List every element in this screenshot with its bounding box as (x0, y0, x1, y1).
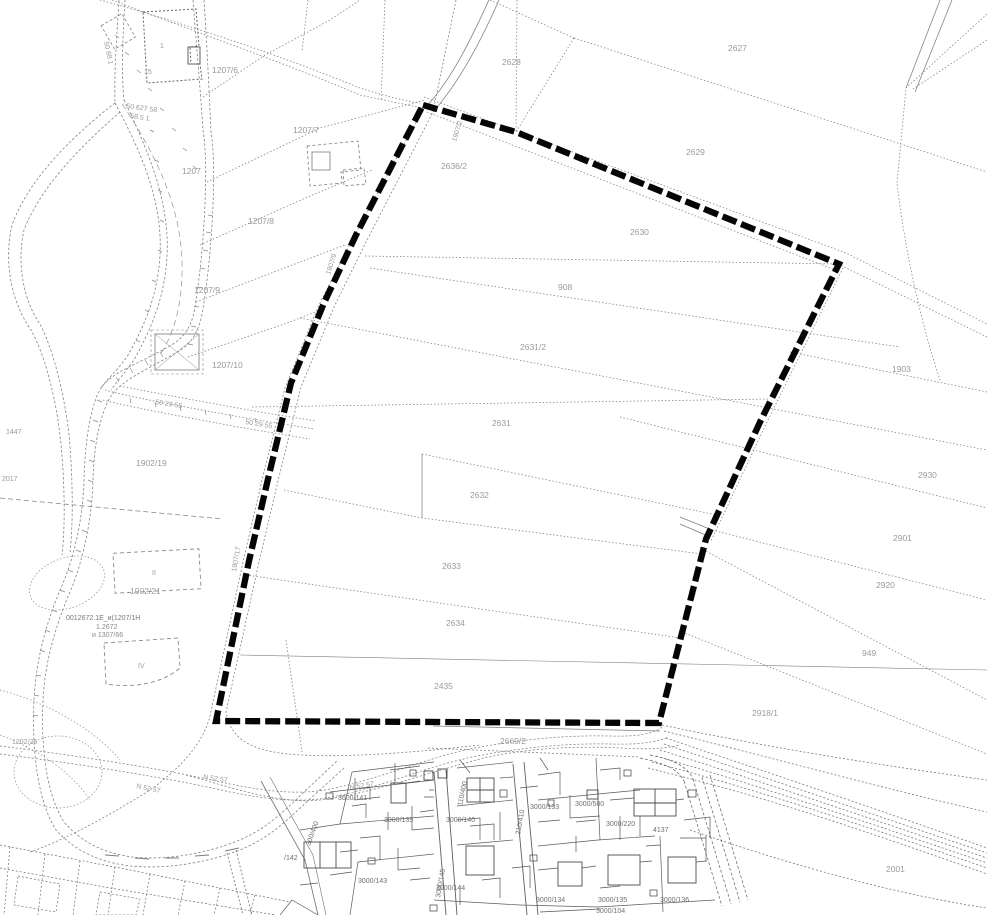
svg-text:1.2672: 1.2672 (96, 624, 118, 631)
svg-text:2435: 2435 (434, 681, 453, 691)
svg-text:IV: IV (138, 663, 145, 670)
svg-text:2930: 2930 (918, 470, 937, 480)
svg-text:/142: /142 (284, 855, 298, 862)
svg-text:и 1307/66: и 1307/66 (92, 632, 123, 639)
svg-text:2669/2: 2669/2 (500, 736, 526, 746)
svg-text:3000/139: 3000/139 (384, 817, 413, 824)
svg-text:1903: 1903 (892, 364, 911, 374)
svg-text:3000/141: 3000/141 (338, 795, 367, 802)
svg-text:1207/6: 1207/6 (212, 65, 238, 75)
svg-text:1902/21: 1902/21 (130, 586, 161, 596)
svg-text:II: II (152, 570, 156, 577)
svg-text:2633: 2633 (442, 561, 461, 571)
svg-text:1447: 1447 (6, 429, 22, 436)
svg-text:1202/26: 1202/26 (12, 739, 37, 746)
svg-text:2628: 2628 (502, 57, 521, 67)
svg-text:2630: 2630 (630, 227, 649, 237)
svg-text:2017: 2017 (2, 476, 18, 483)
svg-text:3000/133: 3000/133 (530, 804, 559, 811)
svg-text:3000/220: 3000/220 (606, 821, 635, 828)
svg-text:949: 949 (862, 648, 876, 658)
svg-text:1: 1 (160, 43, 164, 50)
svg-text:0012672.1Е_и(1207/1Н: 0012672.1Е_и(1207/1Н (66, 615, 140, 622)
svg-text:1207/8: 1207/8 (248, 216, 274, 226)
svg-text:1207/7: 1207/7 (293, 125, 319, 135)
svg-text:3000/134: 3000/134 (536, 897, 565, 904)
svg-text:3000/136: 3000/136 (660, 897, 689, 904)
svg-text:2918/1: 2918/1 (752, 708, 778, 718)
svg-text:1207/10: 1207/10 (212, 360, 243, 370)
svg-text:2629: 2629 (686, 147, 705, 157)
svg-text:2632: 2632 (470, 490, 489, 500)
svg-text:3000/140: 3000/140 (446, 817, 475, 824)
svg-text:2634: 2634 (446, 618, 465, 628)
svg-text:2636/2: 2636/2 (441, 161, 467, 171)
svg-text:4137: 4137 (653, 827, 669, 834)
svg-text:15: 15 (144, 69, 152, 76)
svg-text:2901: 2901 (893, 533, 912, 543)
svg-text:1207/9: 1207/9 (194, 285, 220, 295)
svg-text:2001: 2001 (886, 864, 905, 874)
svg-text:2920: 2920 (876, 580, 895, 590)
svg-text:3000/580: 3000/580 (575, 801, 604, 808)
svg-text:3000/143: 3000/143 (358, 878, 387, 885)
svg-text:1207: 1207 (182, 166, 201, 176)
svg-text:2627: 2627 (728, 43, 747, 53)
svg-text:2631/2: 2631/2 (520, 342, 546, 352)
svg-text:1902/19: 1902/19 (136, 458, 167, 468)
svg-text:908: 908 (558, 282, 572, 292)
svg-text:3000/135: 3000/135 (598, 897, 627, 904)
svg-text:2631: 2631 (492, 418, 511, 428)
svg-text:3000/104: 3000/104 (596, 908, 625, 915)
